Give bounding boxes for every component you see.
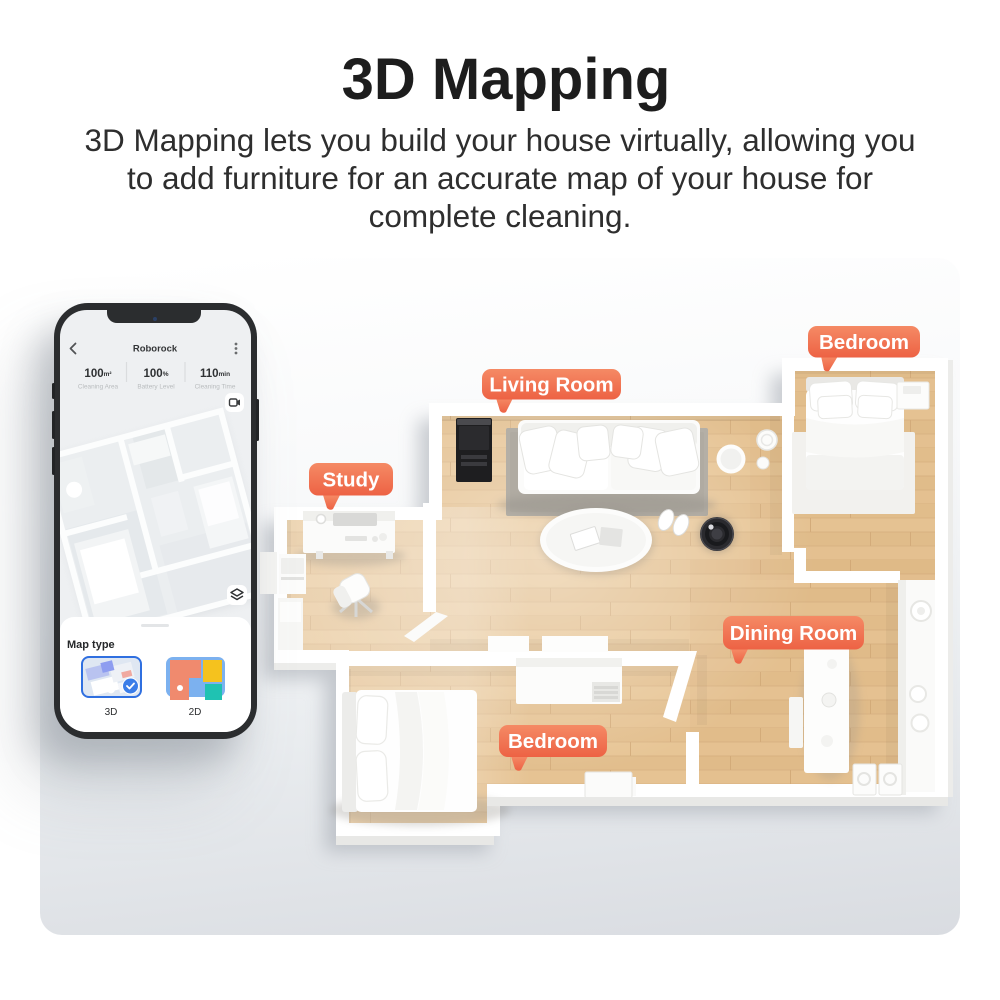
svg-text:Bedroom: Bedroom (819, 331, 909, 354)
svg-text:Dining Room: Dining Room (730, 622, 858, 645)
svg-text:100%: 100% (144, 368, 169, 380)
svg-text:Cleaning Time: Cleaning Time (195, 384, 236, 391)
svg-text:Roborock: Roborock (133, 344, 178, 355)
svg-text:Cleaning Area: Cleaning Area (78, 384, 119, 391)
svg-text:110min: 110min (200, 368, 230, 380)
svg-text:Living Room: Living Room (489, 374, 613, 397)
svg-text:100m²: 100m² (84, 368, 112, 380)
svg-text:Study: Study (323, 469, 381, 492)
svg-text:Battery Level: Battery Level (137, 384, 174, 391)
svg-text:3D: 3D (105, 707, 118, 718)
svg-text:Bedroom: Bedroom (508, 730, 598, 753)
svg-text:2D: 2D (189, 707, 202, 718)
